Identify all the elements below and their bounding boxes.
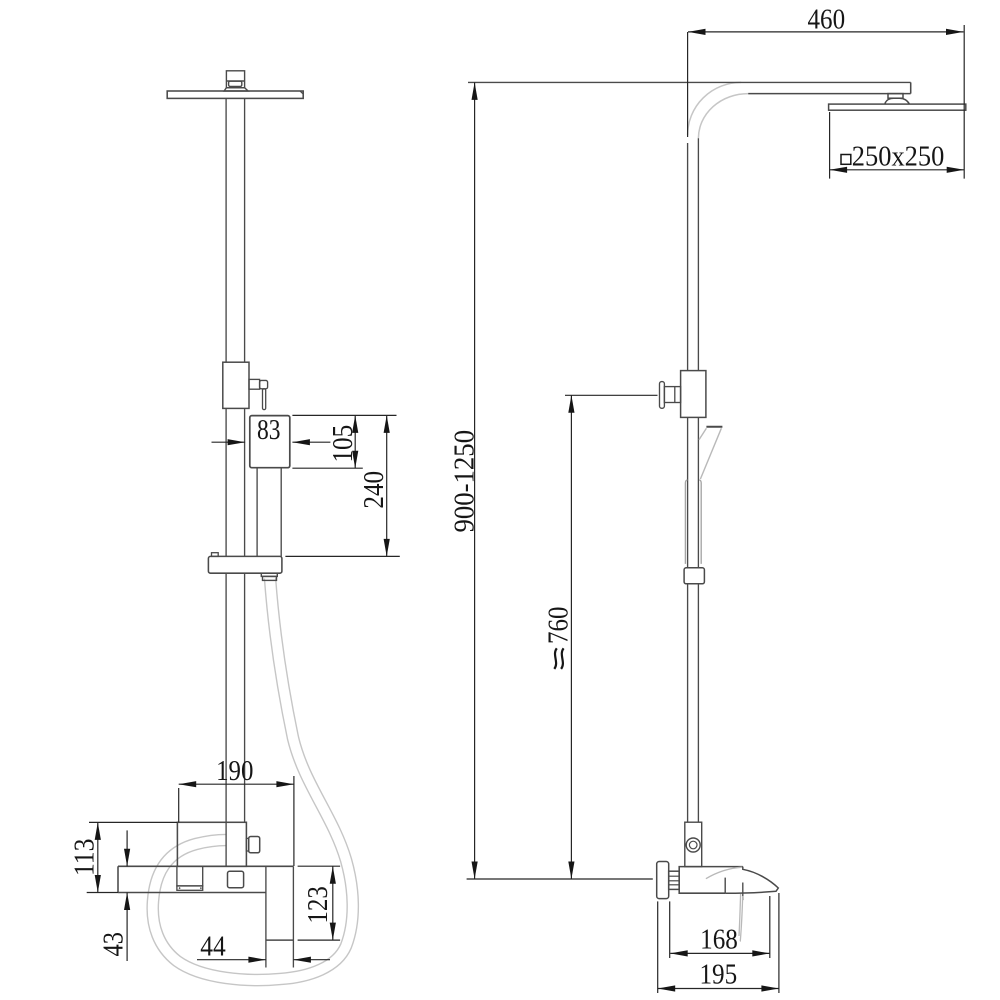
svg-text:760: 760 [543,606,575,644]
svg-text:105: 105 [327,425,359,463]
svg-text:43: 43 [98,932,130,957]
svg-text:240: 240 [358,471,390,509]
svg-text:44: 44 [200,930,226,962]
svg-text:113: 113 [68,839,100,877]
svg-text:123: 123 [302,886,334,924]
svg-text:190: 190 [216,755,253,787]
svg-text:168: 168 [700,924,738,956]
svg-text:460: 460 [808,4,846,36]
svg-text:195: 195 [699,959,737,991]
svg-text:250x250: 250x250 [852,141,945,173]
svg-text:83: 83 [257,414,281,446]
svg-text:900-1250: 900-1250 [449,430,481,533]
